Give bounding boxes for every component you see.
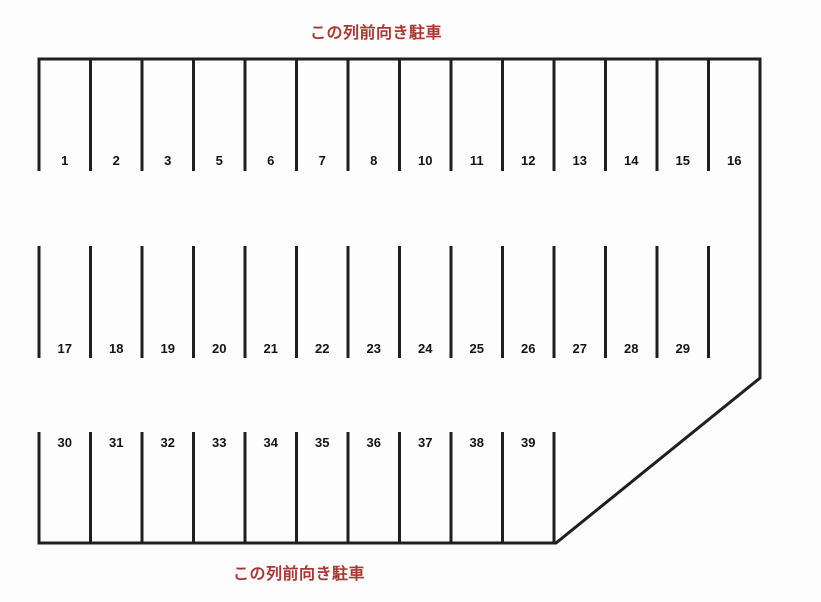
stall-number-32: 32 (161, 435, 175, 450)
parking-lot-diagram: この列前向き駐車 1235678101112131415161718192021… (0, 0, 821, 602)
stall-dividers (39, 59, 709, 543)
stall-number-24: 24 (418, 341, 433, 356)
stall-number-16: 16 (727, 153, 741, 168)
stall-number-33: 33 (212, 435, 226, 450)
stall-number-36: 36 (367, 435, 381, 450)
stall-number-37: 37 (418, 435, 432, 450)
stall-number-14: 14 (624, 153, 639, 168)
stall-number-31: 31 (109, 435, 123, 450)
stall-number-5: 5 (216, 153, 223, 168)
stall-number-25: 25 (470, 341, 484, 356)
stall-number-10: 10 (418, 153, 432, 168)
stall-number-22: 22 (315, 341, 329, 356)
stall-number-30: 30 (58, 435, 72, 450)
stall-number-34: 34 (264, 435, 279, 450)
stall-number-12: 12 (521, 153, 535, 168)
stall-number-18: 18 (109, 341, 123, 356)
stall-number-26: 26 (521, 341, 535, 356)
stall-number-17: 17 (58, 341, 72, 356)
stall-number-15: 15 (676, 153, 690, 168)
stall-number-7: 7 (319, 153, 326, 168)
stall-number-8: 8 (370, 153, 377, 168)
stall-number-19: 19 (161, 341, 175, 356)
stall-number-38: 38 (470, 435, 484, 450)
front-facing-parking-note-bottom: この列前向き駐車 (233, 560, 365, 584)
stall-number-27: 27 (573, 341, 587, 356)
stall-number-3: 3 (164, 153, 171, 168)
stall-number-23: 23 (367, 341, 381, 356)
stall-number-1: 1 (61, 153, 68, 168)
stall-number-21: 21 (264, 341, 278, 356)
stall-number-11: 11 (470, 153, 484, 168)
stall-number-28: 28 (624, 341, 638, 356)
stall-number-39: 39 (521, 435, 535, 450)
stall-number-13: 13 (573, 153, 587, 168)
stall-number-20: 20 (212, 341, 226, 356)
stall-number-29: 29 (676, 341, 690, 356)
stall-number-6: 6 (267, 153, 274, 168)
parking-lot-linework: 1235678101112131415161718192021222324252… (0, 0, 821, 602)
stall-number-35: 35 (315, 435, 329, 450)
stall-number-2: 2 (113, 153, 120, 168)
